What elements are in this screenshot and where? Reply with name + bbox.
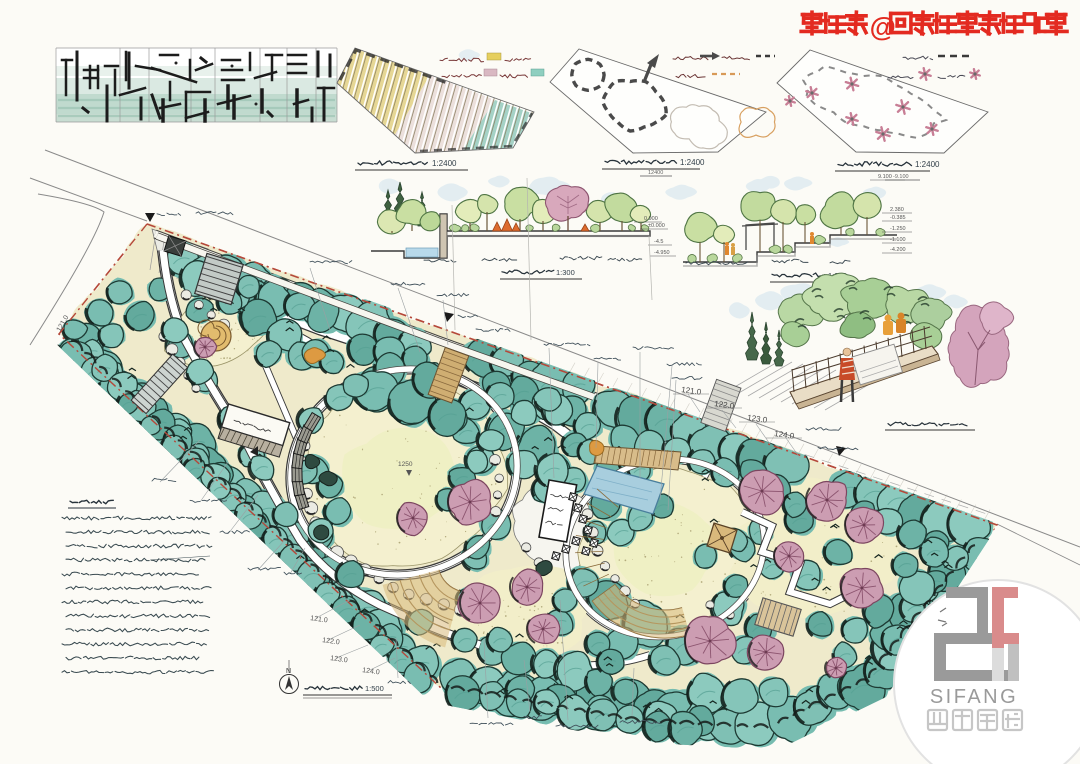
svg-text:9.100: 9.100 xyxy=(878,174,892,180)
svg-text:-1.100: -1.100 xyxy=(890,237,906,243)
svg-text:-0.385: -0.385 xyxy=(890,215,906,221)
svg-text:1:2400: 1:2400 xyxy=(432,159,457,168)
svg-text:2.380: 2.380 xyxy=(890,207,904,213)
svg-text:-4.5: -4.5 xyxy=(654,239,663,245)
svg-text:1250: 1250 xyxy=(398,461,413,468)
svg-text:0.900: 0.900 xyxy=(644,216,658,222)
svg-text:1:500: 1:500 xyxy=(365,684,384,693)
svg-text:-9.100: -9.100 xyxy=(893,174,909,180)
svg-text:-4.950: -4.950 xyxy=(654,250,670,256)
svg-text:±0.000: ±0.000 xyxy=(648,223,665,229)
svg-text:12400: 12400 xyxy=(648,170,663,176)
svg-text:1:2400: 1:2400 xyxy=(915,160,940,169)
svg-text:-4.200: -4.200 xyxy=(890,247,906,253)
svg-text:1:2400: 1:2400 xyxy=(680,158,705,167)
svg-text:SIFANG: SIFANG xyxy=(930,686,1018,708)
svg-text:N: N xyxy=(286,668,291,675)
svg-text:-1.250: -1.250 xyxy=(890,226,906,232)
svg-text:1:300: 1:300 xyxy=(556,268,575,277)
